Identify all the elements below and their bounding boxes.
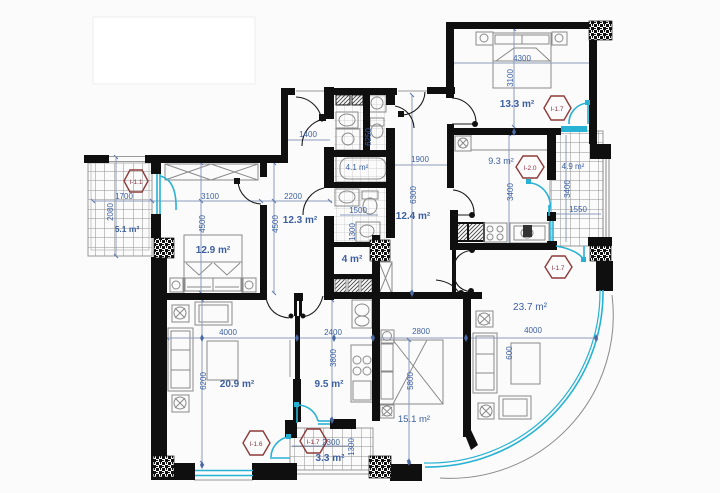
svg-text:6200: 6200	[199, 372, 208, 390]
svg-text:1550: 1550	[569, 205, 587, 214]
svg-text:I-1.7: I-1.7	[306, 439, 319, 446]
svg-text:1900: 1900	[411, 155, 429, 164]
svg-text:I-1.7: I-1.7	[551, 265, 564, 272]
svg-text:I-1.1: I-1.1	[129, 179, 142, 186]
svg-text:2200: 2200	[284, 192, 302, 201]
svg-text:15.1 m²: 15.1 m²	[398, 414, 430, 425]
svg-text:20.9 m²: 20.9 m²	[220, 379, 255, 390]
svg-text:2080: 2080	[106, 203, 115, 221]
svg-text:1300: 1300	[348, 223, 357, 241]
svg-text:6250: 6250	[364, 128, 373, 146]
svg-text:3100: 3100	[506, 69, 515, 87]
svg-text:23.7 m²: 23.7 m²	[513, 302, 548, 313]
svg-text:1300: 1300	[347, 438, 356, 456]
svg-text:13.3 m²: 13.3 m²	[500, 99, 535, 110]
svg-text:I-1.7: I-1.7	[550, 106, 563, 113]
svg-text:9.5 m²: 9.5 m²	[315, 379, 345, 390]
svg-text:1400: 1400	[299, 130, 317, 139]
svg-text:12.9 m²: 12.9 m²	[196, 245, 231, 256]
svg-text:4000: 4000	[219, 328, 237, 337]
svg-text:3400: 3400	[563, 180, 572, 198]
svg-text:4500: 4500	[271, 215, 280, 233]
svg-text:3100: 3100	[201, 192, 219, 201]
svg-text:I-1.6: I-1.6	[249, 441, 262, 448]
svg-text:5800: 5800	[406, 372, 415, 390]
svg-text:12.4 m²: 12.4 m²	[396, 211, 431, 222]
svg-text:3800: 3800	[329, 349, 338, 367]
svg-text:5.1 m²: 5.1 m²	[115, 224, 140, 234]
svg-text:12.3 m²: 12.3 m²	[283, 215, 318, 226]
svg-text:600: 600	[505, 346, 514, 360]
svg-text:3.3 m²: 3.3 m²	[316, 453, 346, 464]
svg-text:4 m²: 4 m²	[342, 254, 363, 265]
svg-text:I-2.0: I-2.0	[523, 165, 536, 172]
svg-text:9.3 m²: 9.3 m²	[488, 156, 514, 166]
svg-text:4.1 m²: 4.1 m²	[346, 163, 369, 172]
svg-text:2800: 2800	[412, 327, 430, 336]
svg-text:6300: 6300	[409, 186, 418, 204]
svg-text:1500: 1500	[349, 206, 367, 215]
svg-text:4000: 4000	[524, 326, 542, 335]
svg-text:4.9 m²: 4.9 m²	[562, 162, 585, 171]
svg-text:1700: 1700	[115, 192, 133, 201]
svg-text:4300: 4300	[513, 54, 531, 63]
svg-text:4500: 4500	[198, 215, 207, 233]
svg-text:3400: 3400	[506, 183, 515, 201]
svg-text:2300: 2300	[322, 438, 340, 447]
